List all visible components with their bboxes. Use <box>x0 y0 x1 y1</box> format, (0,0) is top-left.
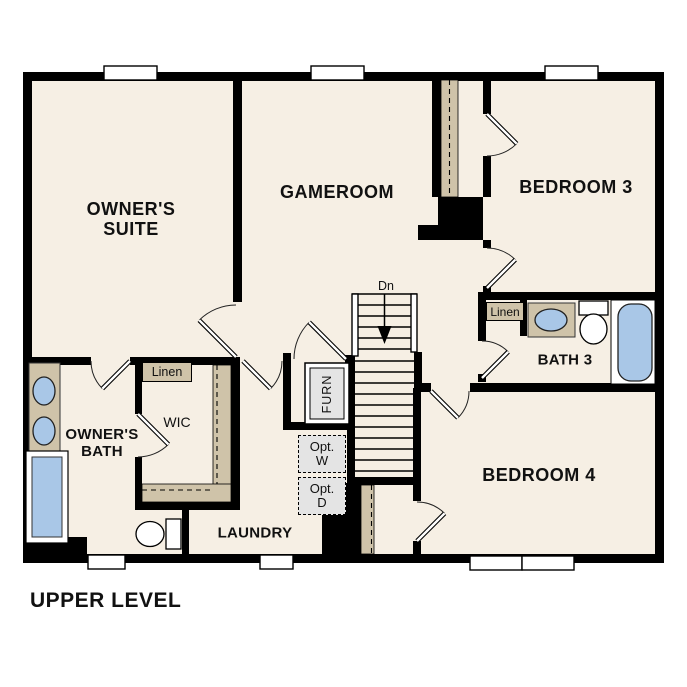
room-label-gameroom: GAMEROOM <box>280 182 394 202</box>
opt-dryer-line1: Opt. <box>310 482 335 496</box>
opt-dryer-line2: D <box>317 496 326 510</box>
sink-icon <box>535 309 567 331</box>
bathtub-icon <box>618 304 652 381</box>
furnace-label: FURN <box>320 375 334 414</box>
room-label-laundry: LAUNDRY <box>218 526 293 543</box>
floor-plan-drawing <box>0 0 687 687</box>
toilet-icon <box>580 314 607 344</box>
window <box>104 66 157 80</box>
window <box>545 66 598 80</box>
window <box>522 556 574 570</box>
window <box>88 555 125 569</box>
room-label-owners-suite: OWNER'S SUITE <box>87 199 176 239</box>
room-label-owners-bath: OWNER'S BATH <box>65 427 138 461</box>
opt-washer-line2: W <box>316 454 328 468</box>
railing <box>411 294 417 352</box>
room-label-bedroom4: BEDROOM 4 <box>482 465 596 485</box>
room-label-bath3: BATH 3 <box>538 353 593 370</box>
optional-dryer: Opt. D <box>298 477 346 515</box>
plan-title: UPPER LEVEL <box>30 589 181 613</box>
linen-closet-label: Linen <box>486 302 524 321</box>
shower-pan <box>32 457 62 537</box>
sink-icon <box>33 417 55 445</box>
linen-closet-label: Linen <box>142 362 192 382</box>
room-label-bedroom3: BEDROOM 3 <box>519 177 633 197</box>
window <box>470 556 522 570</box>
sink-icon <box>33 377 55 405</box>
toilet-tank <box>166 519 181 549</box>
opt-washer-line1: Opt. <box>310 440 335 454</box>
railing <box>352 294 358 356</box>
window <box>311 66 364 80</box>
toilet-tank <box>579 301 608 315</box>
floor-plan: OWNER'S SUITE GAMEROOM BEDROOM 3 OWNER'S… <box>0 0 687 687</box>
window <box>260 555 293 569</box>
room-label-wic: WIC <box>163 415 190 431</box>
stairs-down-label: Dn <box>378 279 394 293</box>
optional-washer: Opt. W <box>298 435 346 473</box>
toilet-icon <box>136 522 164 547</box>
